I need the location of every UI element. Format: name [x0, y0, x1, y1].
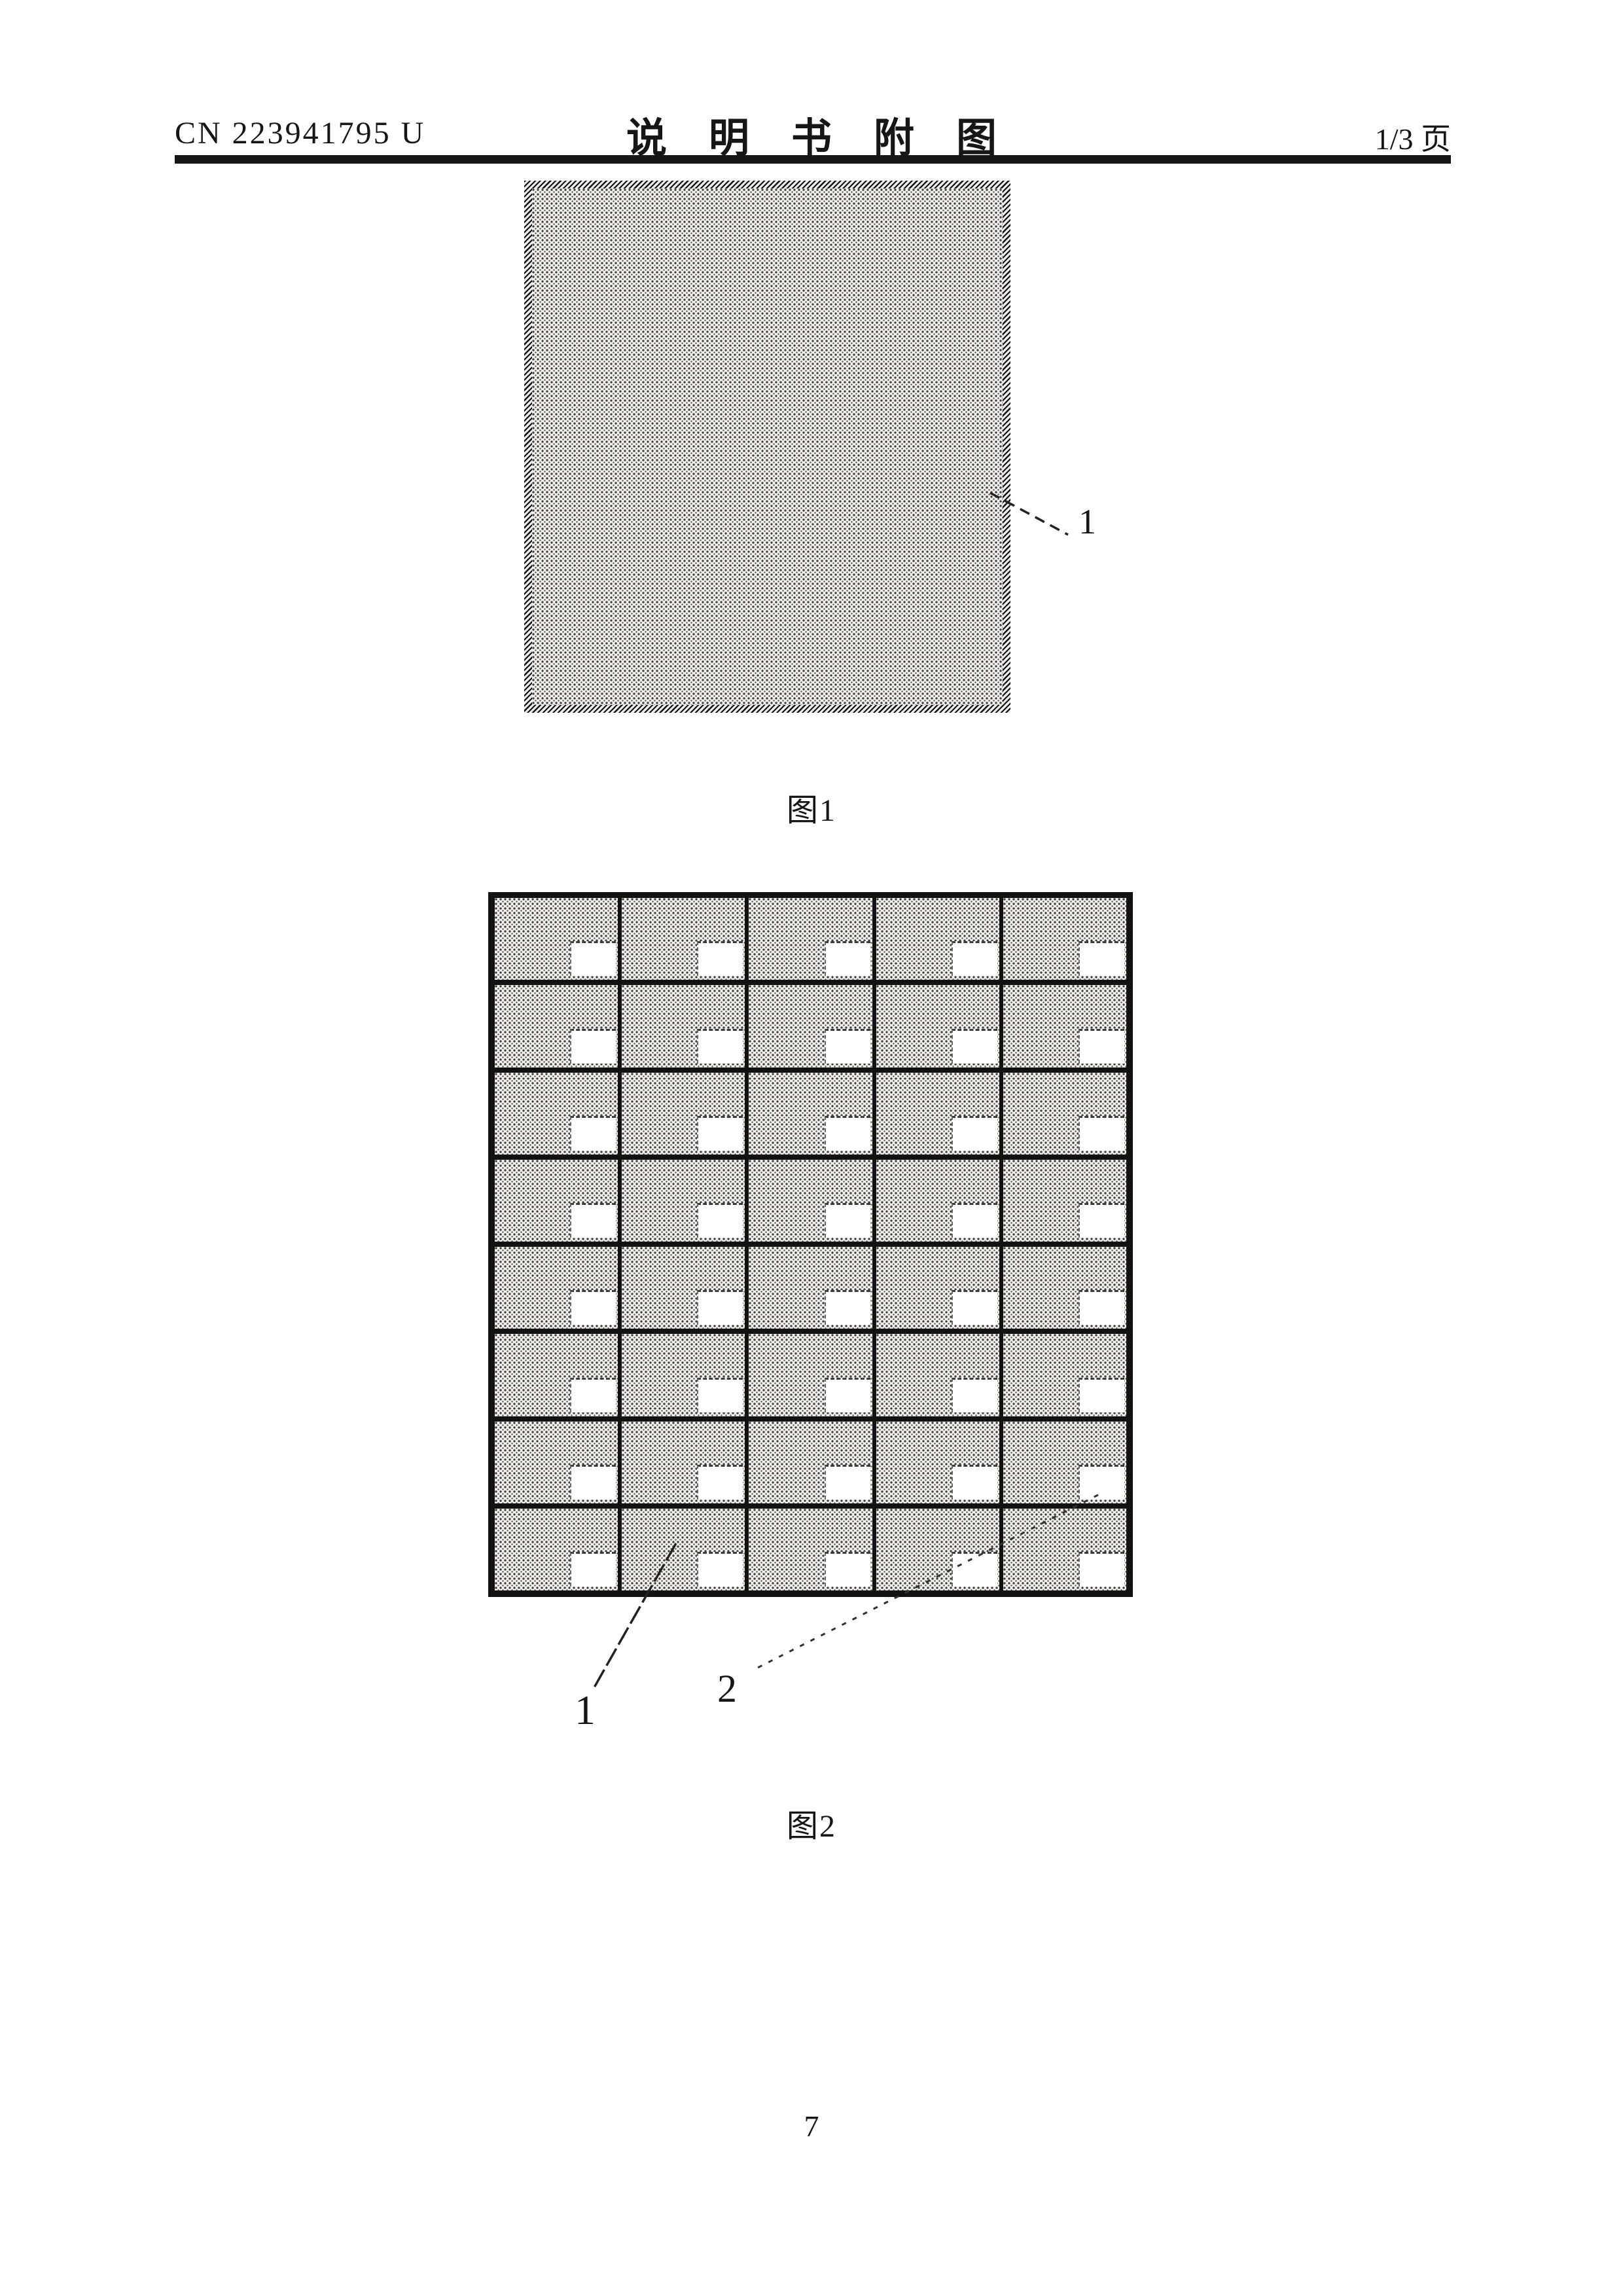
figure2-ref-label-2: 2 — [717, 1666, 737, 1712]
grid-cell — [495, 898, 618, 980]
grid-cell — [876, 898, 999, 980]
grid-cell — [622, 1160, 745, 1242]
through-hole — [570, 1465, 616, 1499]
through-hole — [697, 941, 743, 976]
page-number: 7 — [0, 2109, 1623, 2144]
through-hole — [952, 1203, 997, 1238]
grid-cell — [1003, 1073, 1126, 1155]
figure2-grid — [488, 892, 1133, 1597]
through-hole — [952, 1378, 997, 1412]
through-hole — [952, 1029, 997, 1064]
through-hole — [1079, 1465, 1124, 1499]
through-hole — [1079, 1290, 1124, 1325]
through-hole — [570, 1029, 616, 1064]
figure1-caption: 图1 — [0, 784, 1623, 830]
grid-cell — [622, 1334, 745, 1416]
grid-cell — [622, 1509, 745, 1590]
patent-drawings-page: CN 223941795 U 说明书附图 1/3 页 1 1 2 图1 图2 7 — [0, 0, 1623, 2296]
through-hole — [697, 1029, 743, 1064]
grid-cell — [1003, 1334, 1126, 1416]
grid-cell — [876, 1334, 999, 1416]
through-hole — [952, 1552, 997, 1587]
grid-cell — [876, 1247, 999, 1329]
through-hole — [1079, 1203, 1124, 1238]
grid-cell — [495, 1247, 618, 1329]
through-hole — [570, 941, 616, 976]
through-hole — [1079, 941, 1124, 976]
grid-cell — [495, 1160, 618, 1242]
through-hole — [825, 1552, 870, 1587]
through-hole — [825, 1378, 870, 1412]
grid-cell — [1003, 1247, 1126, 1329]
figure2-ref-label-1: 1 — [575, 1686, 596, 1734]
header-rule — [175, 155, 1451, 164]
document-number: CN 223941795 U — [175, 115, 425, 151]
grid-cell — [876, 1509, 999, 1590]
grid-cell — [876, 1160, 999, 1242]
through-hole — [825, 1290, 870, 1325]
grid-cell — [495, 1422, 618, 1503]
through-hole — [697, 1290, 743, 1325]
through-hole — [1079, 1552, 1124, 1587]
page-indicator: 1/3 页 — [1375, 115, 1451, 158]
grid-cell — [749, 1334, 872, 1416]
grid-cell — [622, 898, 745, 980]
through-hole — [697, 1552, 743, 1587]
through-hole — [1079, 1378, 1124, 1412]
through-hole — [952, 1290, 997, 1325]
grid-cell — [1003, 985, 1126, 1067]
through-hole — [825, 1465, 870, 1499]
grid-cell — [622, 1422, 745, 1503]
grid-cell — [749, 1422, 872, 1503]
through-hole — [952, 941, 997, 976]
grid-cell — [1003, 1160, 1126, 1242]
grid-cell — [622, 1073, 745, 1155]
through-hole — [825, 941, 870, 976]
through-hole — [570, 1378, 616, 1412]
grid-cell — [876, 1422, 999, 1503]
through-hole — [825, 1029, 870, 1064]
grid-cell — [749, 1509, 872, 1590]
through-hole — [570, 1552, 616, 1587]
figure1-panel — [524, 181, 1010, 713]
grid-cell — [1003, 1509, 1126, 1590]
through-hole — [570, 1116, 616, 1151]
grid-cell — [495, 1509, 618, 1590]
through-hole — [570, 1290, 616, 1325]
grid-cell — [749, 1073, 872, 1155]
grid-cell — [876, 985, 999, 1067]
through-hole — [697, 1203, 743, 1238]
through-hole — [697, 1378, 743, 1412]
grid-cell — [749, 1160, 872, 1242]
through-hole — [1079, 1029, 1124, 1064]
figure2-caption: 图2 — [0, 1800, 1623, 1846]
grid-cell — [622, 985, 745, 1067]
grid-cell — [749, 898, 872, 980]
grid-cell — [1003, 1422, 1126, 1503]
through-hole — [825, 1116, 870, 1151]
figure1-ref-label-1: 1 — [1079, 501, 1096, 542]
figure1-panel-fill — [532, 188, 1003, 705]
through-hole — [697, 1465, 743, 1499]
through-hole — [570, 1203, 616, 1238]
through-hole — [952, 1116, 997, 1151]
grid-cell — [495, 1073, 618, 1155]
grid-cell — [495, 985, 618, 1067]
grid-cell — [749, 985, 872, 1067]
grid-cell — [1003, 898, 1126, 980]
grid-cell — [622, 1247, 745, 1329]
through-hole — [1079, 1116, 1124, 1151]
through-hole — [952, 1465, 997, 1499]
through-hole — [697, 1116, 743, 1151]
grid-cell — [749, 1247, 872, 1329]
through-hole — [825, 1203, 870, 1238]
grid-cell — [495, 1334, 618, 1416]
grid-cell — [876, 1073, 999, 1155]
